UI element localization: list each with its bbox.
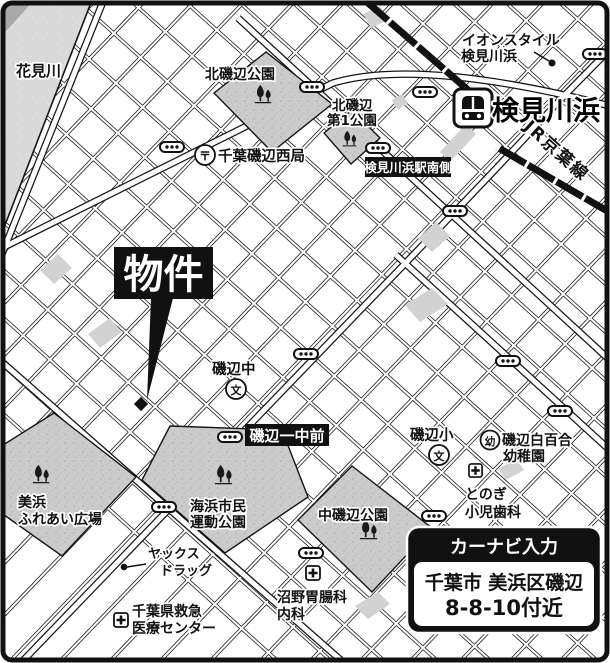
bus-stop-icon [160, 142, 184, 152]
svg-text:磯辺一中前: 磯辺一中前 [248, 427, 324, 445]
post-office-mark: 〒 [199, 149, 211, 163]
svg-text:検見川浜駅南側: 検見川浜駅南側 [364, 160, 452, 175]
post-office-label: 千葉磯辺西局 [218, 147, 305, 165]
isobe-icchu-mae-busstop-label: 磯辺一中前 [245, 424, 329, 446]
bus-stop-icon [422, 511, 446, 521]
car-navi-box: カーナビ入力 千葉市 美浜区磯辺 8-8-10付近 [407, 527, 601, 633]
bus-stop-icon [218, 432, 242, 442]
aeon-label-1: イオンスタイル [462, 33, 560, 49]
bus-stop-icon [300, 82, 324, 92]
hospital-cross-icon [114, 613, 128, 627]
hospital-cross-icon [469, 464, 482, 477]
hospital-cross-icon [306, 566, 320, 580]
map-svg: 〒 文 文 幼 検見川浜 [0, 0, 610, 663]
kita-isobe-park-label: 北磯辺公園 [205, 66, 275, 83]
school-mark: 文 [434, 449, 446, 463]
isobe-es-label: 磯辺小 [409, 426, 454, 444]
numano-clinic-label-1: 沼野胃腸科 [277, 589, 347, 606]
kita-isobe-no1-park-label-1: 北磯辺 [332, 97, 373, 114]
yax-drug-label-2: ドラッグ [160, 563, 212, 579]
car-navi-address-1: 千葉市 美浜区磯辺 [425, 571, 584, 594]
area-map: 〒 文 文 幼 検見川浜 [0, 0, 610, 663]
bus-stop-icon [548, 406, 572, 416]
aeon-label-2: 検見川浜 [461, 48, 517, 65]
kyukyu-center-label-1: 千葉県救急 [132, 603, 202, 620]
mihama-fureai-label-2: ふれあい広場 [18, 511, 102, 528]
car-navi-title: カーナビ入力 [450, 537, 558, 558]
shirayuri-label-1: 磯辺白百合 [502, 432, 573, 449]
isobe-jhs-label: 磯辺中 [211, 360, 256, 378]
numano-clinic-label-2: 内科 [277, 606, 305, 623]
property-label: 物件 [124, 252, 204, 298]
bus-stop-icon [152, 502, 176, 512]
bus-stop-icon [366, 143, 390, 153]
station-south-busstop-label: 検見川浜駅南側 [364, 157, 452, 177]
kaihin-park-label-1: 海浜市民 [190, 498, 246, 515]
yax-drug-label-1: ヤックス [148, 547, 200, 562]
tonogi-label-1: とのぎ [465, 486, 507, 503]
bus-stop-icon [413, 87, 437, 97]
kindergarten-icon: 幼 [481, 431, 500, 450]
river-label: 花見川 [15, 62, 61, 80]
naka-isobe-park-label: 中磯辺公園 [318, 507, 388, 524]
bus-stop-icon [583, 49, 607, 59]
train-station-icon [454, 89, 492, 127]
kyukyu-center-label-2: 医療センター [132, 620, 216, 637]
station-name: 検見川浜 [492, 96, 600, 127]
school-icon-isobe-jhs: 文 [226, 379, 246, 399]
bus-stop-icon [299, 548, 323, 558]
mihama-fureai-label-1: 美浜 [18, 494, 46, 511]
post-office-icon: 〒 [195, 145, 215, 165]
bus-stop-icon [443, 206, 467, 216]
tonogi-label-2: 小児歯科 [465, 504, 521, 521]
kindergarten-mark: 幼 [485, 435, 496, 448]
shirayuri-label-2: 幼稚園 [503, 448, 545, 465]
kaihin-park-label-2: 運動公園 [190, 514, 246, 531]
bus-stop-icon [496, 356, 520, 366]
kita-isobe-no1-park-label-2: 第1公園 [327, 112, 377, 129]
school-mark: 文 [231, 383, 243, 397]
car-navi-address-2: 8-8-10付近 [445, 596, 563, 620]
school-icon-isobe-es: 文 [429, 445, 449, 465]
bus-stop-icon [294, 349, 318, 359]
